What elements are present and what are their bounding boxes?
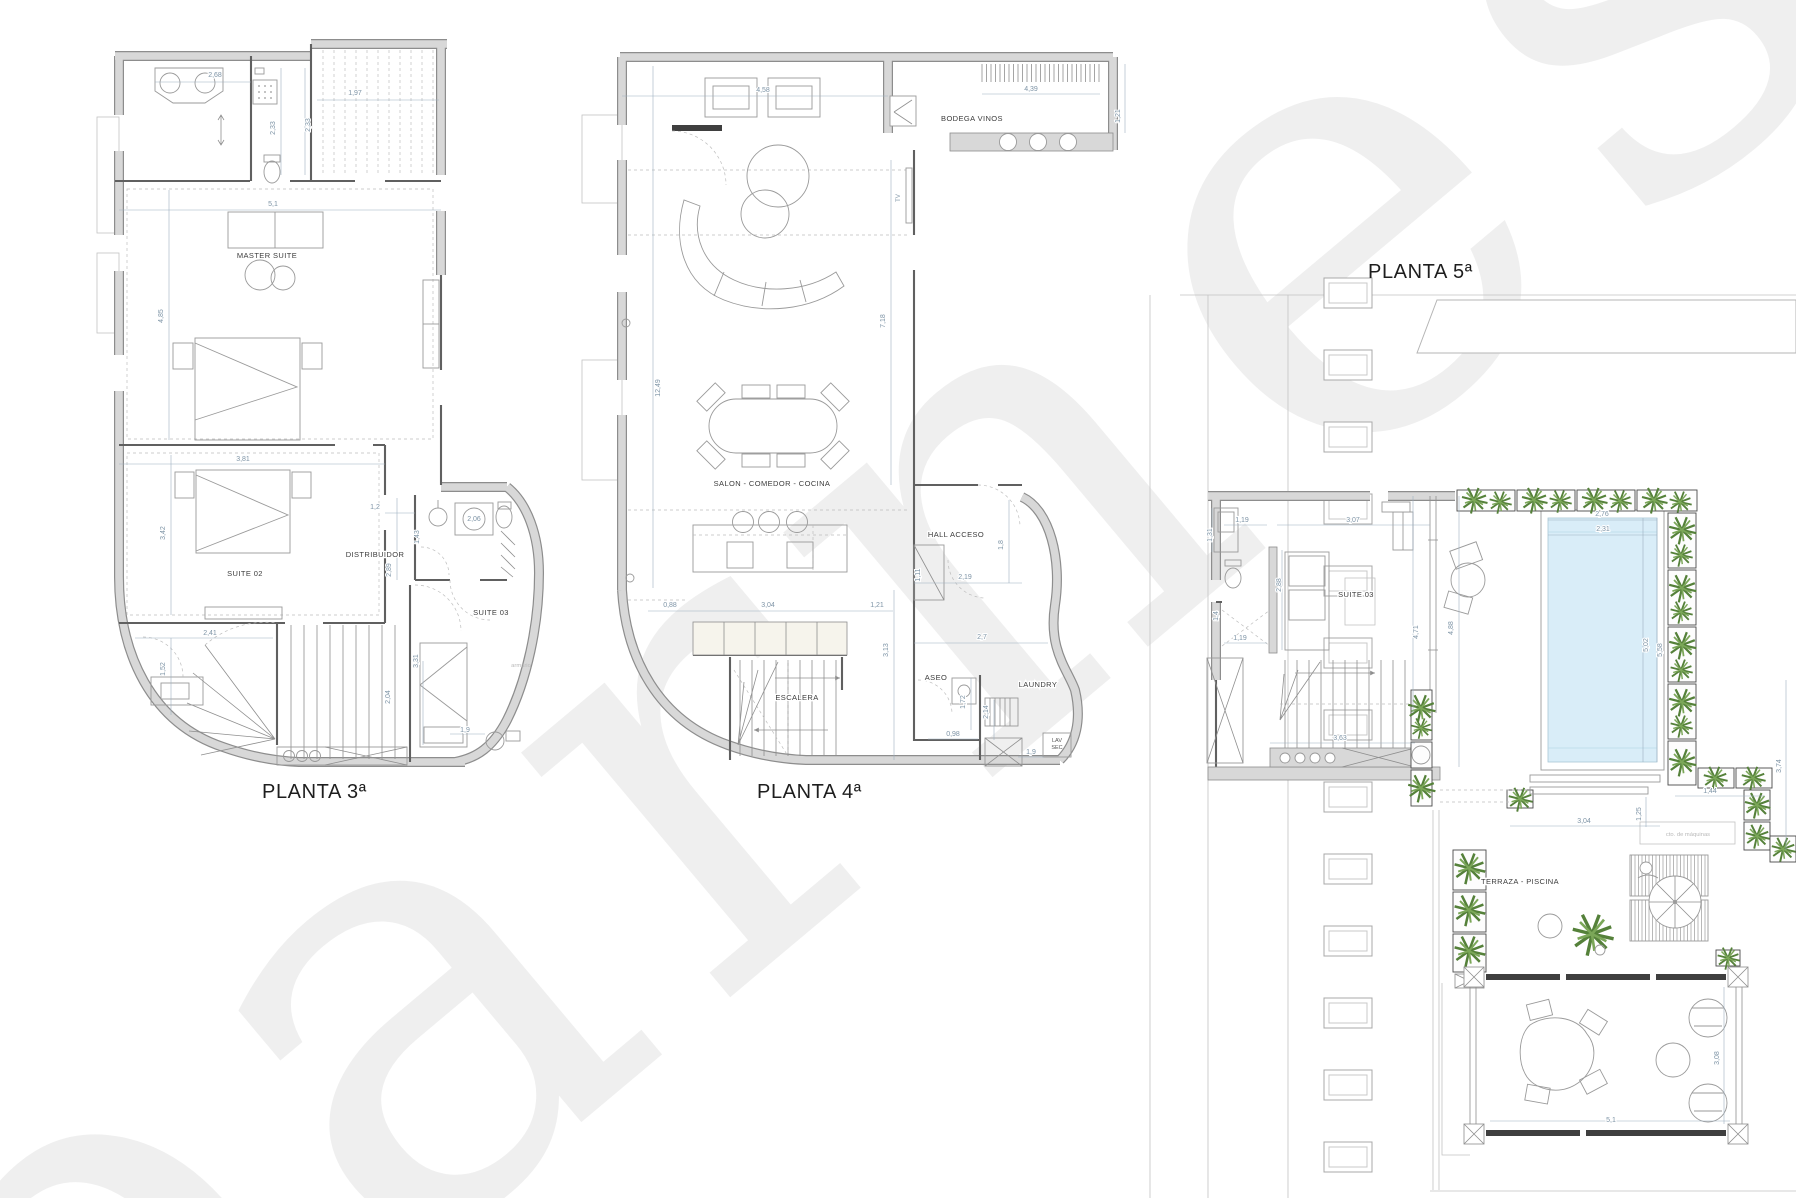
- dim-text: 0,88: [663, 602, 677, 609]
- dim-text: 3,13: [883, 643, 890, 657]
- planta3-plan: 2,68 1,97 2,33 2,33 5,1 4,85 MASTER SUIT…: [55, 25, 555, 785]
- planta3-dimlines: [119, 68, 485, 745]
- planta3-title: PLANTA 3ª: [262, 781, 367, 804]
- armchair-icon: [1689, 999, 1727, 1037]
- armchair-icon: [1689, 1084, 1727, 1122]
- tv-label: TV: [896, 194, 902, 202]
- planta3-closet: [323, 50, 433, 173]
- dim-text: 3,07: [1346, 517, 1360, 524]
- umbrella-icon: [1649, 876, 1701, 928]
- dim-text: 1,4: [1213, 611, 1220, 621]
- room-label-suite02: SUITE 02: [227, 569, 263, 578]
- dim-text: 3,31: [413, 654, 420, 668]
- sink-icon: [160, 73, 180, 93]
- room-label-salon: SALON - COMEDOR - COCINA: [714, 479, 831, 488]
- dim-text: 1,19: [1235, 517, 1249, 524]
- dining-table-icon: [709, 399, 837, 453]
- dim-text: 2,14: [983, 705, 990, 719]
- sliding-door: [1486, 974, 1726, 980]
- planta5-terrace-chair: [1444, 542, 1485, 614]
- bed-icon: [195, 338, 300, 440]
- dim-text: 1,8: [998, 540, 1005, 550]
- chair-icon: [1580, 1069, 1608, 1094]
- dim-text: 2,33: [270, 121, 277, 135]
- pool-water: [1548, 518, 1657, 762]
- tv-icon: [906, 168, 912, 223]
- room-label-terraza: TERRAZA - PISCINA: [1481, 877, 1559, 886]
- dim-text: 1,2: [370, 504, 380, 511]
- dim-text: 2,7: [977, 634, 987, 641]
- dim-text: 5,02: [1643, 638, 1650, 652]
- dim-text: 2,19: [958, 574, 972, 581]
- sec-label: SEC: [1051, 745, 1062, 751]
- planta5-skylight-strip: [1324, 278, 1372, 1172]
- dim-text: 12,49: [655, 379, 662, 397]
- planta5-bottom-room: [1442, 967, 1748, 1155]
- chair-icon: [1526, 999, 1552, 1020]
- dim-text: 1,9: [1026, 749, 1036, 756]
- dim-text: 3,04: [761, 602, 775, 609]
- planta4-bodega: [890, 64, 1113, 151]
- dim-text: 1,44: [1703, 788, 1717, 795]
- sofa-icon: [1285, 552, 1329, 650]
- dim-text: 1,72: [960, 695, 967, 709]
- chair-icon: [1579, 1009, 1607, 1035]
- planta4-kitchen: [693, 512, 847, 656]
- sink-icon: [429, 508, 447, 526]
- dim-text: 3,04: [1577, 818, 1591, 825]
- planta4-balconies: [582, 115, 622, 480]
- lav-label: LAV: [1052, 738, 1062, 744]
- dim-text: 1,19: [1233, 635, 1247, 642]
- planta5-suite-interior: [1207, 502, 1415, 763]
- table-icon: [1538, 914, 1562, 938]
- room-label-distribuidor: DISTRIBUIDOR: [346, 550, 405, 559]
- dim-text: 3,74: [1776, 759, 1783, 773]
- planta4-salon: [622, 78, 912, 600]
- person-icon: [1640, 862, 1652, 874]
- dim-text: 3,42: [160, 526, 167, 540]
- dim-text: 1,25: [1636, 807, 1643, 821]
- dim-text: 2,41: [203, 630, 217, 637]
- dim-text: 1,11: [915, 568, 922, 581]
- dim-text: 4,71: [1413, 625, 1420, 639]
- roof-outline: [1417, 300, 1796, 353]
- sofa-icon: [680, 200, 844, 309]
- planta3-bath2: [421, 500, 512, 575]
- dim-text: 2,31: [1596, 526, 1610, 533]
- dim-text: 4,88: [1448, 621, 1455, 635]
- room-label-suite03: SUITE 03: [1338, 590, 1374, 599]
- dim-text: 2,88: [1276, 578, 1283, 592]
- dim-text: 3,81: [236, 456, 250, 463]
- dim-text: 1,21: [870, 602, 884, 609]
- dim-text: 2,04: [385, 690, 392, 704]
- chair-icon: [1525, 1084, 1550, 1104]
- dim-text: 1,9: [460, 727, 470, 734]
- dim-text: 1,97: [348, 90, 362, 97]
- dim-text: 1,31: [1207, 528, 1214, 542]
- dim-text: 1,43: [414, 530, 421, 544]
- dim-text: 2,06: [467, 516, 481, 523]
- dim-text: 4,39: [1024, 86, 1038, 93]
- dim-text: 5,1: [1606, 1117, 1616, 1124]
- dim-text: 4,58: [756, 87, 770, 94]
- label-armario: armario: [511, 663, 531, 669]
- dim-text: 3,08: [1714, 1051, 1721, 1065]
- dim-text: 2,89: [386, 563, 393, 577]
- label-maquinas: cto. de máquinas: [1666, 832, 1710, 838]
- room-label-escalera: ESCALERA: [775, 693, 818, 702]
- table-icon: [1520, 1018, 1594, 1090]
- room-label-bodega: BODEGA VINOS: [941, 114, 1003, 123]
- dim-text: 0,98: [946, 731, 960, 738]
- toilet-icon: [264, 161, 280, 183]
- dim-text: 1,21: [1115, 109, 1122, 123]
- sliding-door: [1486, 1130, 1726, 1136]
- dim-text: 3,63: [1333, 735, 1347, 742]
- room-label-aseo: ASEO: [925, 673, 947, 682]
- room-label-suite03: SUITE 03: [473, 608, 509, 617]
- planta4-dining: [697, 383, 849, 469]
- room-label-master-suite: MASTER SUITE: [237, 251, 297, 260]
- dim-text: 7,18: [880, 314, 887, 328]
- dim-text: 2,76: [1595, 511, 1609, 518]
- planta3-master-suite: [127, 189, 439, 440]
- toilet-icon: [1225, 568, 1241, 588]
- planta5-title: PLANTA 5ª: [1368, 261, 1473, 284]
- dim-text: 5,58: [1657, 643, 1664, 657]
- planta3-master-bath: [155, 68, 280, 183]
- planta4-plan: 4,58 4,39 BODEGA VINOS 1,21 TV 12,49 7,1…: [548, 30, 1148, 790]
- dim-text: 2,33: [305, 118, 312, 132]
- wine-rack-icon: [982, 64, 1099, 82]
- planta5-site-lines: [1150, 295, 1796, 1198]
- dim-text: 5,1: [268, 201, 278, 208]
- chair-icon: [1450, 542, 1483, 569]
- bed-icon: [196, 470, 290, 553]
- dim-text: 2,68: [208, 72, 222, 79]
- dim-text: 4,85: [158, 309, 165, 323]
- planta5-plan: 1,19 3,07 1,31 2,88 1,19 1,4 SUITE 03 4,…: [1130, 250, 1796, 1198]
- planta5-terraza: [1538, 822, 1735, 956]
- planta4-stairs: [734, 660, 840, 756]
- dim-text: 1,52: [160, 662, 167, 676]
- side-table-icon: [1656, 1043, 1690, 1077]
- planta3-walls: [115, 44, 539, 762]
- room-label-laundry: LAUNDRY: [1019, 680, 1058, 689]
- planta4-title: PLANTA 4ª: [757, 781, 862, 804]
- floorplan-sheet: barnes: [0, 0, 1796, 1198]
- room-label-hall: HALL ACCESO: [928, 530, 984, 539]
